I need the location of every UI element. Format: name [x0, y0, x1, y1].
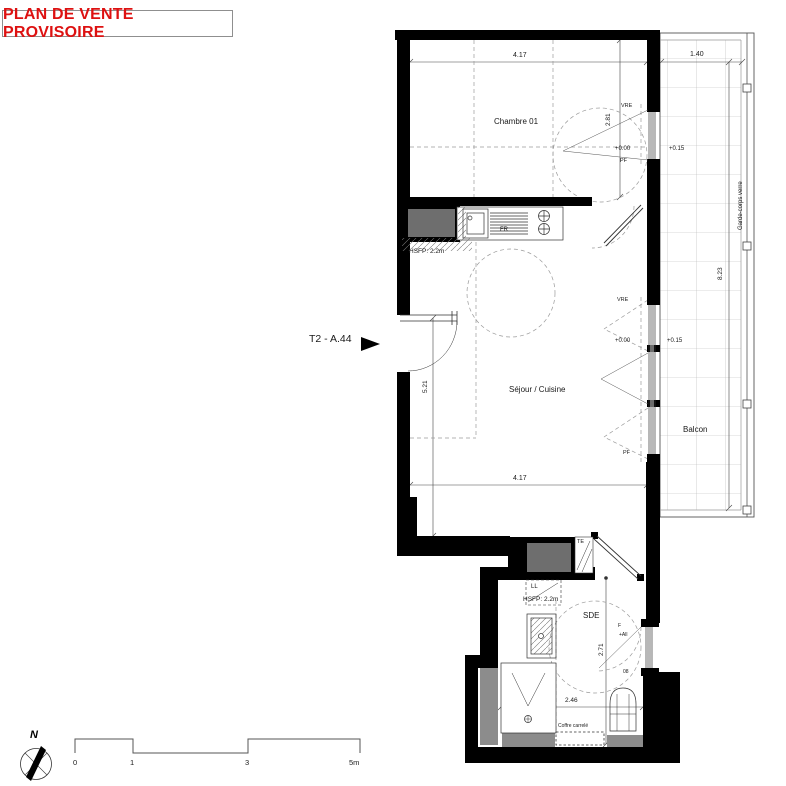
label-guardrail: Garde-corps verre: [738, 181, 744, 230]
level-living: +0.00: [615, 338, 630, 344]
scale-tick-3: 3: [245, 759, 249, 767]
entry-door: [400, 311, 457, 371]
plan-title-box: PLAN DE VENTE PROVISOIRE: [2, 10, 233, 37]
label-te: TE: [577, 540, 584, 546]
kitchen-duct: [408, 209, 455, 237]
label-pf-living: PF: [623, 451, 630, 457]
floor-plan-drawing: [0, 0, 786, 786]
dim-balcony-width: 1.40: [690, 51, 704, 58]
sde-sliding-door: [594, 536, 641, 579]
dim-living-width: 4.17: [513, 475, 527, 482]
floor-plan-sheet: PLAN DE VENTE PROVISOIRE T2 - A.44 Chamb…: [0, 0, 786, 786]
plan-title: PLAN DE VENTE PROVISOIRE: [3, 6, 232, 42]
label-hsfp-sde: HSFP: 2.2m: [523, 597, 558, 604]
living-window: [601, 305, 655, 454]
wc: [610, 688, 636, 731]
level-bedroom: +0.00: [615, 146, 630, 152]
dim-sde-depth: 2.71: [599, 643, 606, 656]
north-label: N: [30, 730, 38, 741]
label-fridge: FR: [500, 227, 508, 233]
label-tiled-box: Coffre carrelé: [558, 724, 588, 729]
balcony-area: [660, 33, 754, 517]
label-ll: LL: [531, 584, 538, 590]
dim-sde-width: 2.46: [565, 698, 578, 705]
level-balcony-b: +0.15: [667, 338, 682, 344]
label-pf-bedroom: PF: [620, 159, 627, 165]
dim-balcony-length: 8.23: [718, 267, 725, 280]
room-label-sde: SDE: [583, 612, 599, 620]
dim-living-depth: 5.21: [423, 380, 430, 393]
level-balcony-a: +0.15: [669, 146, 684, 152]
shower: [501, 663, 556, 733]
room-label-living: Séjour / Cuisine: [509, 386, 565, 394]
level-sde-sill: +All: [619, 633, 627, 638]
bedroom-sliding-door: [604, 205, 643, 246]
unit-label: T2 - A.44: [309, 334, 352, 345]
scale-tick-0: 0: [73, 759, 77, 767]
washbasin: [527, 614, 556, 658]
tiled-box: [556, 732, 604, 745]
label-vre-bedroom: VRE: [621, 104, 632, 110]
label-window-f: F: [618, 624, 621, 629]
sde-duct: [527, 543, 571, 572]
label-hsfp-kitchen: HSFP: 2.2m: [409, 249, 444, 256]
label-vre-living: VRE: [617, 298, 628, 304]
room-label-bedroom: Chambre 01: [494, 118, 538, 126]
scale-tick-1: 1: [130, 759, 134, 767]
dim-bedroom-width: 4.17: [513, 52, 527, 59]
scale-tick-5m: 5m: [349, 759, 359, 767]
dim-bedroom-depth: 2.81: [606, 113, 613, 126]
room-label-balcony: Balcon: [683, 426, 707, 434]
label-ref-08: 08: [623, 670, 629, 675]
